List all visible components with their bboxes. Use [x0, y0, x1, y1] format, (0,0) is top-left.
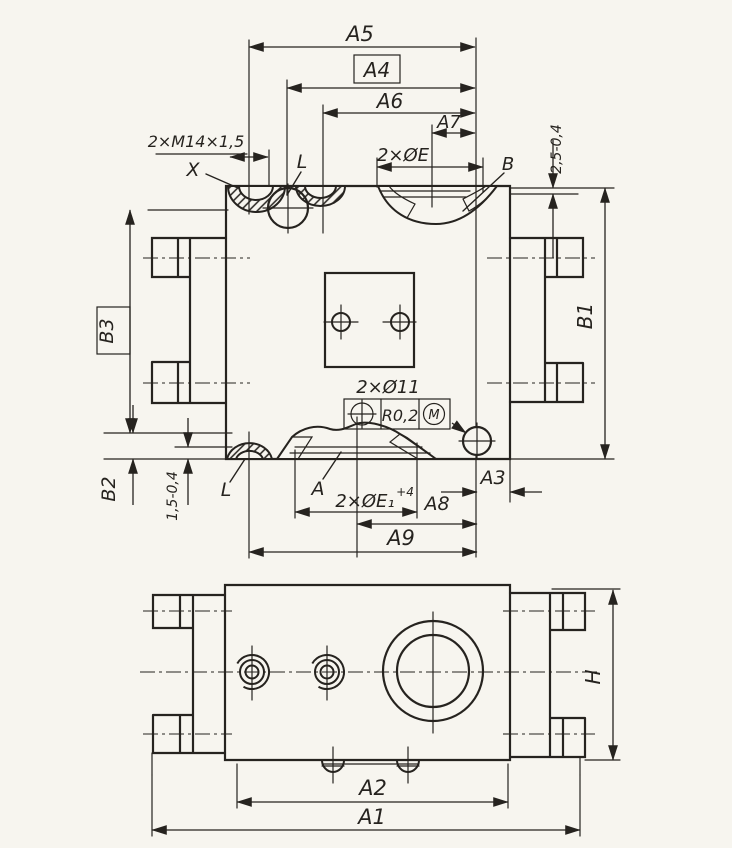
label-ref-b: B — [502, 154, 514, 175]
label-ref-a: A — [310, 478, 325, 500]
label-ref-x: X — [185, 159, 200, 181]
mmc-modifier-icon: M — [424, 404, 445, 425]
label-holes-e1: 2×ØE₁ — [335, 491, 394, 512]
left-flange-front — [143, 595, 232, 775]
labels-top-view: A5 A6 A7 2×ØE 2×M14×1,5 X L B 2,5-0,4 B1… — [98, 22, 597, 550]
label-a5: A5 — [344, 22, 374, 46]
labels-bottom-view: A2 A1 H — [356, 669, 605, 829]
threaded-port-mid — [312, 646, 344, 700]
tolerance-value: R0,2 — [382, 406, 419, 425]
label-a6: A6 — [375, 89, 403, 113]
center-boss — [324, 273, 416, 367]
left-flange — [143, 238, 250, 403]
label-a2: A2 — [357, 776, 387, 800]
dimension-lines-top-view — [130, 47, 605, 552]
label-a7: A7 — [436, 112, 461, 133]
top-view: R0,2 M A4 B3 A5 A6 A7 2×ØE 2×M14×1,5 X L… — [96, 22, 614, 558]
label-a9: A9 — [385, 526, 415, 550]
boxed-dim-a4: A4 — [354, 55, 400, 83]
mmc-modifier-letter: M — [428, 408, 439, 423]
label-a8: A8 — [422, 493, 449, 515]
label-holes-e1-tol: +4 — [396, 485, 414, 499]
label-ref-l-bottom: L — [221, 479, 232, 501]
label-b2: B2 — [98, 476, 120, 501]
valve-body-outline — [226, 186, 510, 459]
label-holes-e: 2×ØE — [377, 145, 430, 166]
label-depth-top: 2,5-0,4 — [549, 124, 565, 174]
lower-right-hole — [459, 423, 495, 459]
label-a4: A4 — [362, 58, 390, 82]
engineering-drawing: R0,2 M A4 B3 A5 A6 A7 2×ØE 2×M14×1,5 X L… — [0, 0, 732, 848]
label-thread: 2×M14×1,5 — [148, 132, 245, 151]
label-a3: A3 — [478, 467, 505, 489]
label-holes-11: 2×Ø11 — [356, 377, 420, 398]
top-edge-port-pocket — [378, 186, 497, 224]
label-b3: B3 — [96, 318, 118, 343]
drawing-sheet: R0,2 M A4 B3 A5 A6 A7 2×ØE 2×M14×1,5 X L… — [0, 0, 732, 848]
label-ref-l-top: L — [297, 151, 308, 173]
label-depth-bottom: 1,5-0,4 — [165, 471, 181, 521]
boxed-dim-b3: B3 — [96, 307, 130, 354]
threaded-port-left — [237, 646, 269, 700]
label-h: H — [581, 669, 605, 684]
tolerance-frame: R0,2 M — [344, 399, 466, 433]
label-a1: A1 — [356, 805, 386, 829]
bottom-view: A2 A1 H — [140, 585, 620, 836]
label-b1: B1 — [573, 303, 597, 329]
